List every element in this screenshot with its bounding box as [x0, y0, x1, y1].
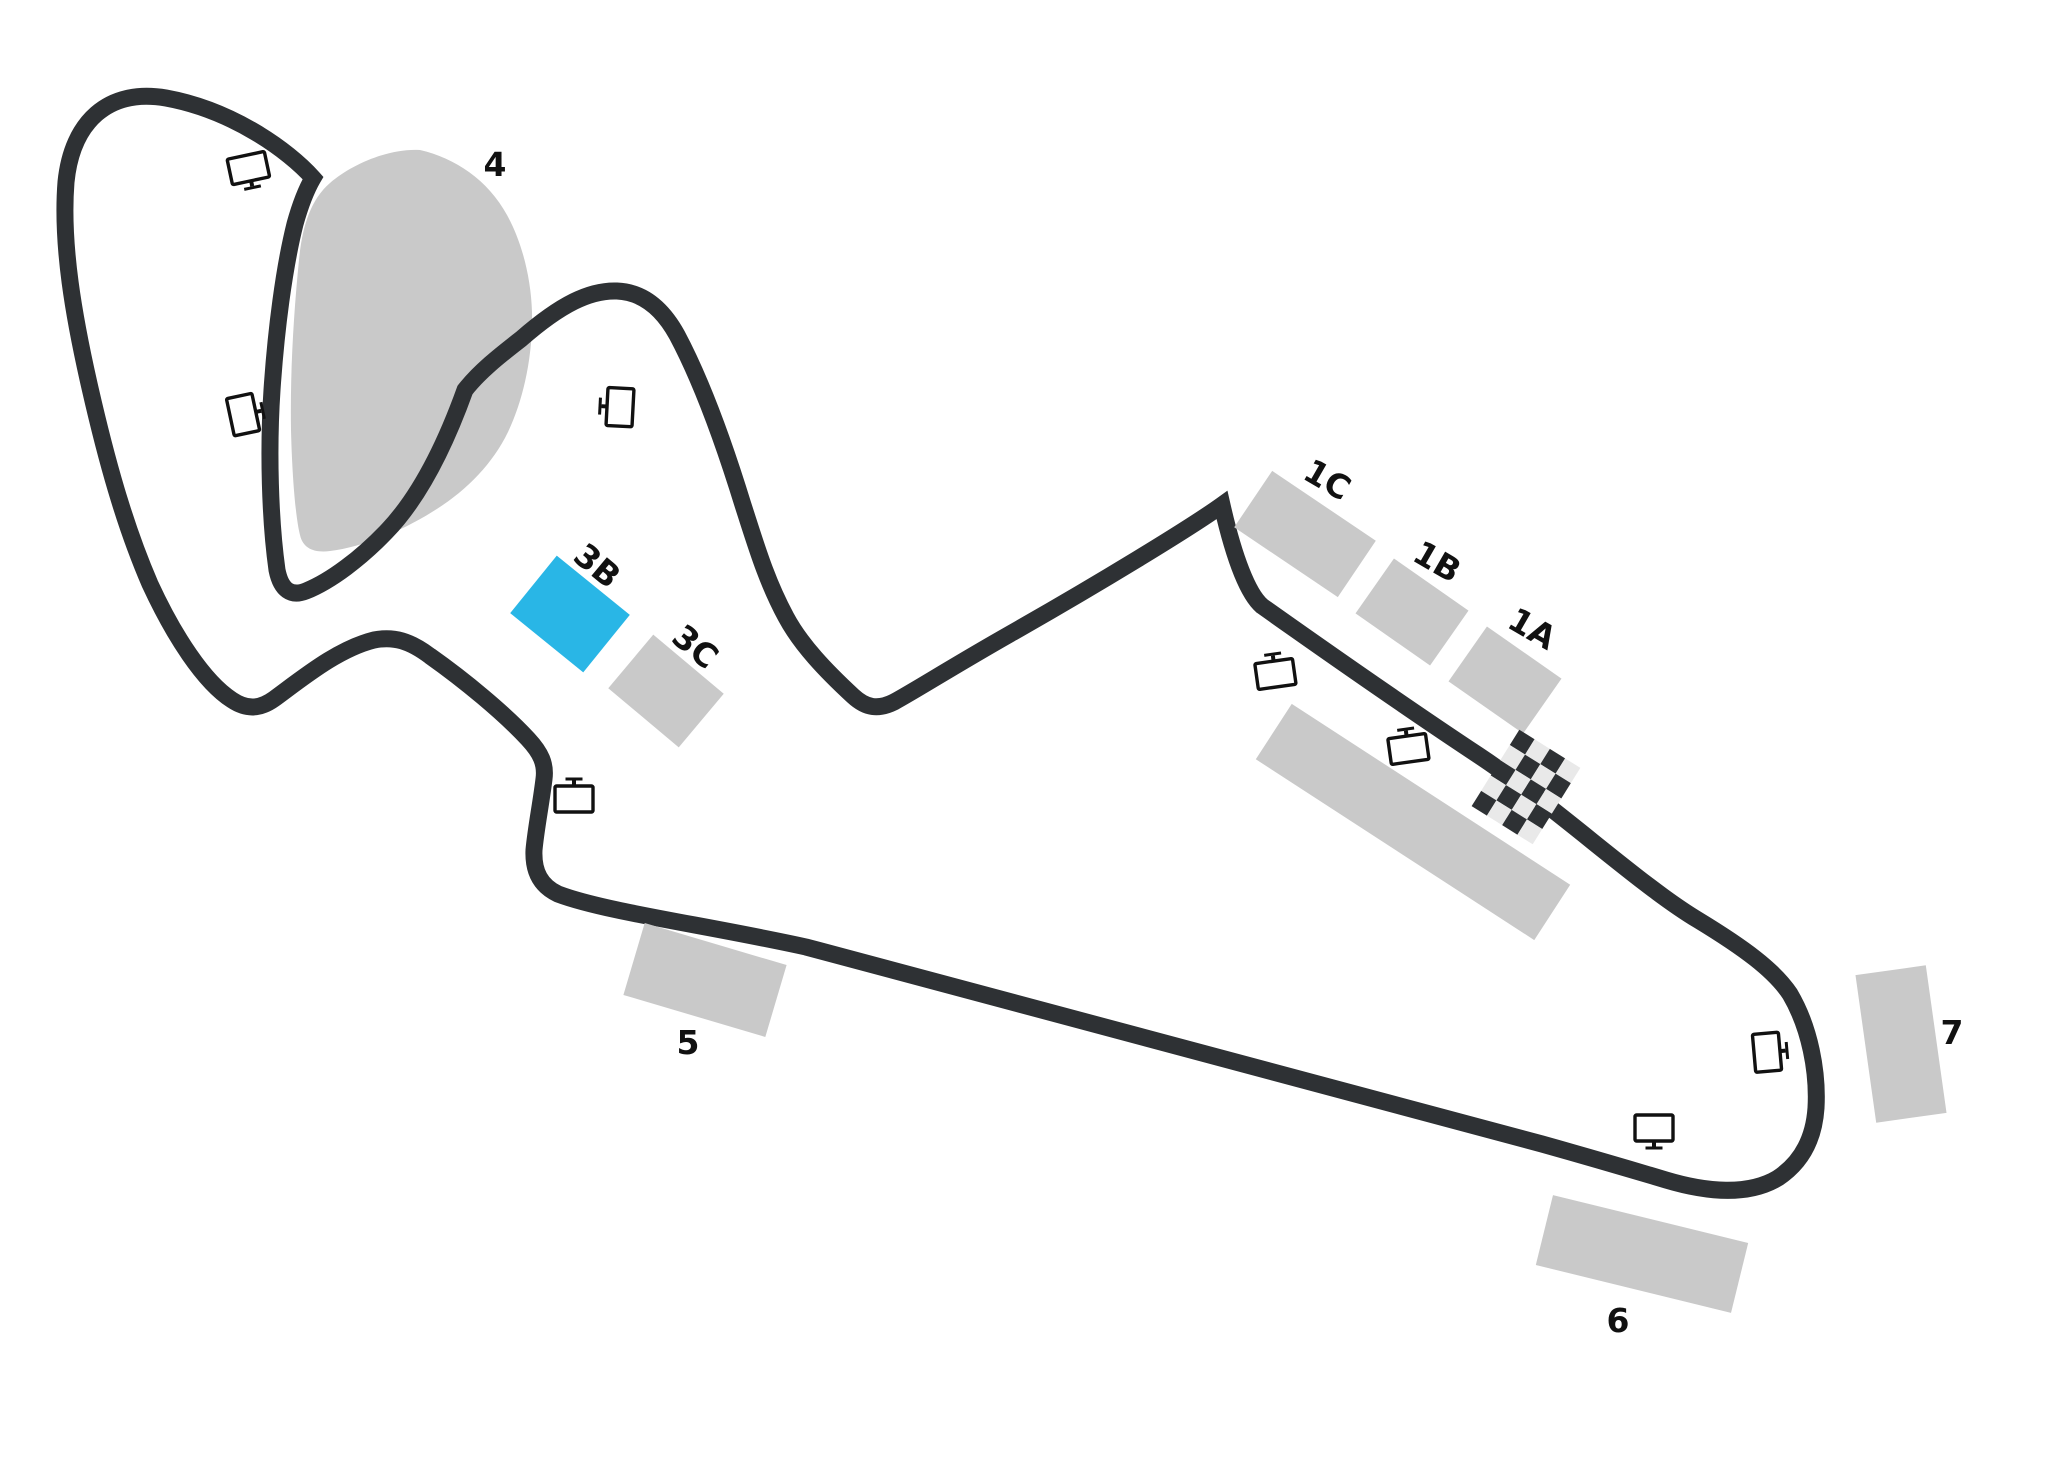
video-screen-icon — [1254, 650, 1296, 689]
section-5-label: 5 — [677, 1023, 700, 1062]
section-7[interactable] — [1855, 965, 1946, 1122]
video-screen-icon — [555, 778, 593, 813]
video-screen-icon — [227, 151, 271, 193]
section-4-label: 4 — [484, 145, 507, 184]
section-6[interactable] — [1536, 1195, 1748, 1313]
section-1c[interactable] — [1234, 471, 1376, 597]
section-6-label: 6 — [1607, 1301, 1630, 1340]
video-screen-icon — [1635, 1115, 1673, 1150]
video-screen-icon — [1387, 725, 1429, 764]
video-screen-icon — [598, 387, 634, 427]
circuit-seating-map: 4 3B 3C 1C 1B 1A 5 6 7 — [0, 0, 2047, 1466]
video-screen-icon — [1752, 1031, 1790, 1072]
circuit-map-svg: 4 3B 3C 1C 1B 1A 5 6 7 — [0, 0, 2047, 1466]
section-7-label: 7 — [1941, 1013, 1964, 1052]
